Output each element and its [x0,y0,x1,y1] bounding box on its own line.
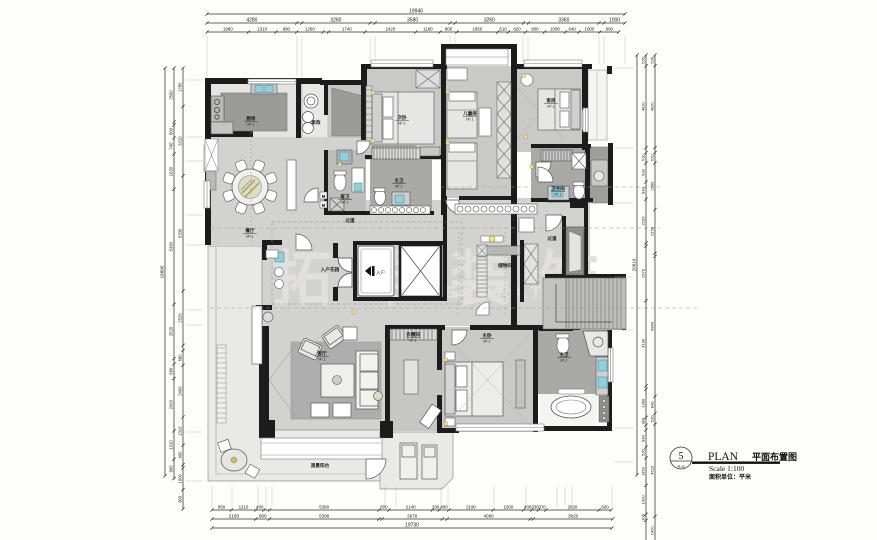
svg-text:800: 800 [445,27,453,32]
svg-text:4020: 4020 [650,102,655,112]
svg-text:主卧: 主卧 [482,332,492,339]
svg-text:5390: 5390 [319,505,329,510]
svg-text:900: 900 [178,451,183,459]
svg-text:900: 900 [531,27,539,32]
svg-text:次卧: 次卧 [397,114,407,121]
svg-text:1350: 1350 [641,466,646,476]
svg-text:3580: 3580 [407,18,418,24]
svg-text:600: 600 [601,505,609,510]
svg-text:过道: 过道 [547,235,557,242]
svg-text:530: 530 [641,56,646,63]
svg-text:20610: 20610 [632,258,637,271]
svg-text:5330: 5330 [178,228,183,238]
svg-text:1980: 1980 [223,27,233,32]
svg-text:R.M: R.M [677,464,684,469]
svg-text:M².1: M².1 [554,193,561,197]
svg-text:M².1: M².1 [341,201,348,205]
svg-text:4090: 4090 [483,514,494,519]
svg-text:950: 950 [218,505,226,510]
svg-text:1380: 1380 [641,398,646,408]
svg-text:1950: 1950 [472,27,482,32]
svg-text:1000: 1000 [609,18,620,24]
svg-text:300: 300 [641,513,646,520]
svg-text:M².1: M².1 [560,359,567,363]
svg-text:M².1: M².1 [246,235,253,239]
svg-text:740: 740 [169,142,174,150]
svg-text:1000: 1000 [178,473,183,483]
svg-text:M: M [322,203,325,208]
svg-text:入户: 入户 [376,269,385,276]
svg-text:680: 680 [259,514,267,519]
svg-text:M².1: M².1 [409,339,416,343]
svg-text:2970: 2970 [407,514,418,519]
svg-text:530: 530 [650,415,655,422]
svg-text:680: 680 [169,367,174,375]
svg-text:主卫: 主卫 [394,177,404,184]
svg-text:530: 530 [650,56,655,63]
svg-text:1420: 1420 [641,495,646,505]
svg-text:820: 820 [513,27,521,32]
svg-text:990: 990 [283,27,291,32]
svg-text:840: 840 [641,434,646,441]
svg-text:2150: 2150 [641,216,646,226]
svg-text:M².1: M².1 [547,105,554,109]
svg-text:2670: 2670 [641,268,646,278]
svg-text:840: 840 [650,401,655,408]
svg-text:厨房: 厨房 [246,115,256,122]
svg-text:6860: 6860 [650,321,655,331]
svg-text:3920: 3920 [568,514,579,519]
svg-text:530: 530 [641,448,646,455]
svg-text:1780: 1780 [178,82,183,92]
svg-text:1310: 1310 [257,27,267,32]
svg-text:面积单位：平米: 面积单位：平米 [709,473,751,481]
svg-text:1420: 1420 [650,526,655,536]
svg-text:480: 480 [440,505,448,510]
svg-text:19940: 19940 [409,9,423,15]
svg-text:储物间: 储物间 [498,262,512,269]
svg-text:1740: 1740 [342,27,352,32]
svg-text:1500: 1500 [504,505,514,510]
svg-text:1260: 1260 [305,27,315,32]
svg-text:1160: 1160 [423,27,433,32]
svg-text:M².1: M².1 [483,340,490,344]
svg-text:4190: 4190 [641,338,646,348]
svg-text:4020: 4020 [641,102,646,112]
svg-text:930: 930 [641,168,646,175]
svg-text:M².1: M².1 [318,358,325,362]
svg-text:1000: 1000 [550,27,560,32]
svg-text:4520: 4520 [650,465,655,475]
svg-text:19730: 19730 [405,523,419,529]
svg-text:Scale 1:100: Scale 1:100 [709,464,744,473]
svg-text:1210: 1210 [239,505,249,510]
svg-text:1310: 1310 [169,440,174,450]
svg-text:儿童房: 儿童房 [462,110,477,117]
svg-text:衣帽间: 衣帽间 [406,331,420,338]
svg-text:2520: 2520 [169,326,174,336]
svg-text:600: 600 [169,127,174,135]
svg-text:M².1: M².1 [247,123,254,127]
svg-text:330: 330 [432,505,440,510]
svg-text:M².1: M².1 [466,118,473,122]
svg-text:2420: 2420 [386,27,396,32]
svg-text:640: 640 [569,27,577,32]
svg-text:客卫: 客卫 [339,193,350,200]
svg-text:3360: 3360 [558,18,569,24]
svg-text:1310: 1310 [178,426,183,436]
svg-text:2160: 2160 [229,514,240,519]
svg-text:510: 510 [641,154,646,161]
svg-text:2280: 2280 [650,181,655,191]
svg-text:370: 370 [539,505,547,510]
svg-text:3260: 3260 [330,18,341,24]
svg-text:1000: 1000 [585,27,595,32]
svg-text:2140: 2140 [406,505,416,510]
svg-text:840: 840 [641,186,646,193]
svg-text:2400: 2400 [178,386,183,396]
svg-text:2500: 2500 [169,90,174,100]
svg-text:2520: 2520 [178,313,183,323]
svg-text:18890: 18890 [160,265,165,278]
svg-text:平面布置图: 平面布置图 [752,451,797,462]
svg-text:5: 5 [679,451,684,462]
svg-text:3260: 3260 [484,18,495,24]
svg-text:900: 900 [169,465,174,473]
svg-text:3210: 3210 [178,136,183,146]
svg-text:5390: 5390 [319,514,330,519]
svg-text:入户花园: 入户花园 [321,266,340,273]
svg-text:5330: 5330 [169,241,174,251]
svg-text:M: M [322,194,325,199]
svg-text:过道: 过道 [345,217,355,224]
svg-text:4280: 4280 [246,18,257,24]
svg-text:2420: 2420 [169,399,174,409]
svg-text:400: 400 [256,505,264,510]
svg-text:主卫: 主卫 [559,351,569,358]
svg-text:380: 380 [641,417,646,424]
svg-text:M².1: M².1 [395,185,402,189]
svg-text:510: 510 [499,27,507,32]
svg-text:PLAN: PLAN [708,451,739,463]
svg-text:餐厅: 餐厅 [244,227,255,234]
svg-text:客房: 客房 [545,97,556,104]
svg-text:680: 680 [178,354,183,362]
svg-text:2190: 2190 [466,505,476,510]
svg-text:2620: 2620 [568,505,578,510]
svg-text:900: 900 [178,495,183,503]
svg-text:1630: 1630 [169,166,174,176]
svg-text:家政: 家政 [311,119,321,126]
svg-text:卫生间: 卫生间 [551,185,565,192]
svg-text:客厅: 客厅 [316,350,327,357]
svg-text:M².1: M².1 [398,122,405,126]
svg-text:510: 510 [650,154,655,161]
svg-text:900: 900 [606,27,614,32]
svg-text:2150: 2150 [650,226,655,236]
svg-text:观景阳台: 观景阳台 [311,462,330,469]
svg-text:500: 500 [380,505,388,510]
